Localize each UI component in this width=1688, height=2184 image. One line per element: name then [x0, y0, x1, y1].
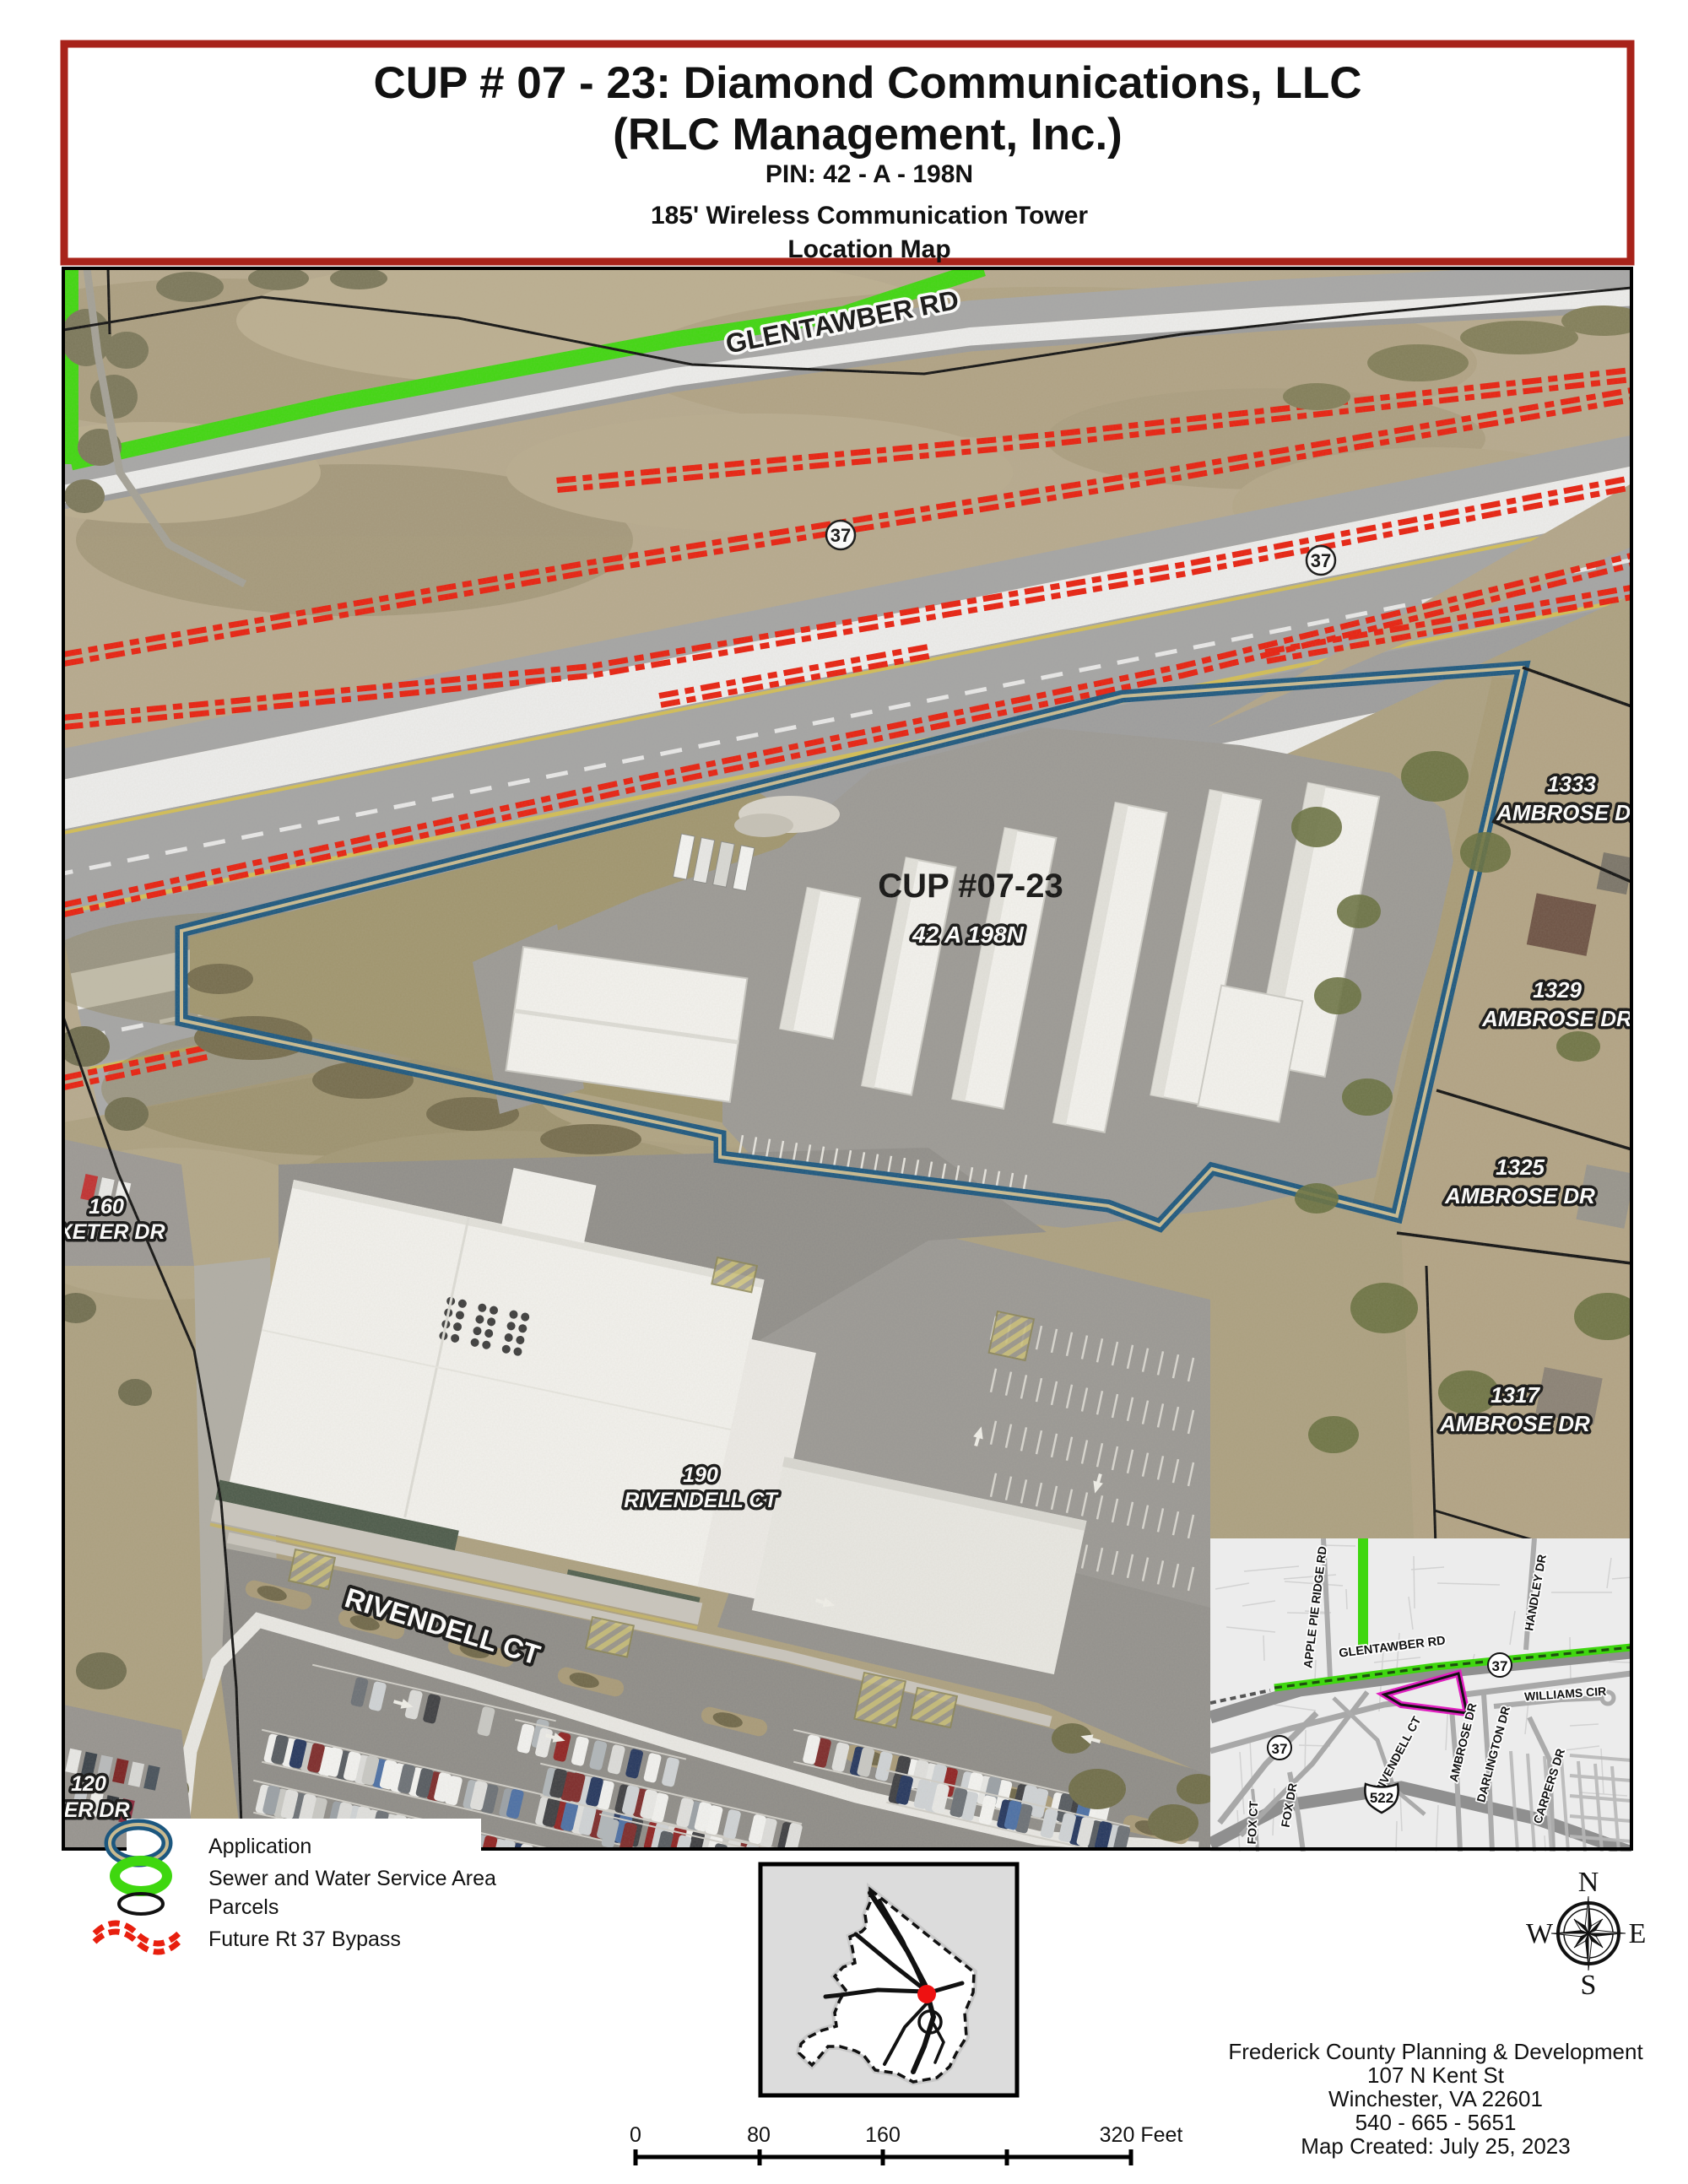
- svg-text:CUP # 07 - 23: Diamond Communi: CUP # 07 - 23: Diamond Communications, L…: [373, 58, 1361, 108]
- svg-text:0: 0: [630, 2123, 641, 2147]
- svg-text:37: 37: [1272, 1741, 1288, 1757]
- svg-text:540 - 665 - 5651: 540 - 665 - 5651: [1355, 2110, 1517, 2135]
- svg-text:E: E: [1629, 1918, 1647, 1949]
- svg-text:80: 80: [747, 2123, 771, 2147]
- svg-text:320 Feet: 320 Feet: [1100, 2123, 1183, 2147]
- svg-text:S: S: [1581, 1970, 1597, 2001]
- svg-text:160: 160: [865, 2123, 901, 2147]
- svg-text:37: 37: [1492, 1658, 1508, 1674]
- svg-text:FOX CT: FOX CT: [1245, 1800, 1261, 1845]
- svg-text:W: W: [1526, 1918, 1554, 1949]
- svg-text:N: N: [1578, 1867, 1599, 1898]
- svg-text:Sewer and Water Service Area: Sewer and Water Service Area: [208, 1867, 496, 1890]
- svg-text:185' Wireless Communication To: 185' Wireless Communication Tower: [651, 202, 1088, 230]
- svg-text:522: 522: [1370, 1790, 1393, 1806]
- svg-text:PIN: 42 - A - 198N: PIN: 42 - A - 198N: [766, 160, 973, 188]
- svg-text:Future Rt 37 Bypass: Future Rt 37 Bypass: [208, 1927, 401, 1951]
- svg-text:(RLC Management, Inc.): (RLC Management, Inc.): [613, 110, 1123, 159]
- svg-text:Winchester, VA 22601: Winchester, VA 22601: [1328, 2086, 1543, 2111]
- svg-text:107 N Kent St: 107 N Kent St: [1367, 2062, 1505, 2088]
- svg-text:Application: Application: [208, 1835, 311, 1858]
- svg-text:Frederick County Planning & De: Frederick County Planning & Development: [1228, 2039, 1643, 2064]
- svg-text:Map Created: July 25, 2023: Map Created: July 25, 2023: [1301, 2133, 1570, 2159]
- svg-text:Location Map: Location Map: [787, 235, 950, 263]
- svg-text:Parcels: Parcels: [208, 1895, 279, 1919]
